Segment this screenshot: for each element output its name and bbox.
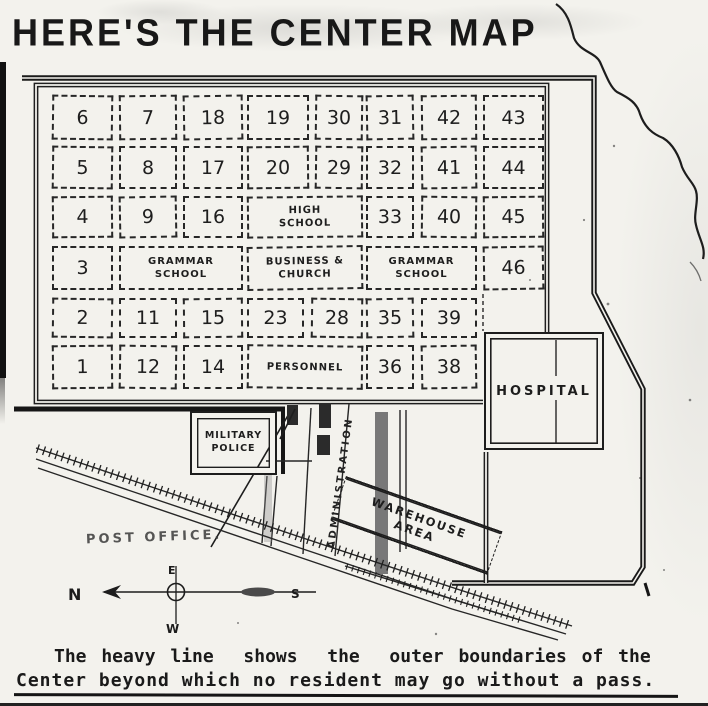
compass-north-label: N [68, 585, 81, 604]
map-caption: The heavy line shows the outer boundarie… [16, 645, 694, 694]
military-police-block: MILITARY POLICE [190, 411, 277, 475]
newspaper-page: { "title": "HERE'S THE CENTER MAP", "map… [0, 0, 708, 706]
grid-border [36, 85, 547, 402]
newspaper-column-rule-fade [0, 378, 5, 424]
compass-east-label: E [168, 564, 176, 577]
military-police-label-line2: POLICE [211, 443, 255, 456]
compass-west-label: W [166, 622, 179, 636]
hospital-label: HOSPITAL [496, 384, 592, 399]
newspaper-column-rule [0, 62, 6, 378]
caption-line2: Center beyond which no resident may go w… [16, 669, 694, 693]
compass-rose: N E W S [68, 564, 316, 636]
gate-buildings [280, 403, 331, 455]
military-police-label-line1: MILITARY [205, 430, 262, 443]
compass-south-label: S [291, 587, 300, 601]
caption-line1: The heavy line shows the outer boundarie… [16, 645, 694, 669]
hospital-block: HOSPITAL [484, 332, 604, 450]
map-title: HERE'S THE CENTER MAP [12, 11, 538, 56]
torn-paper-edge [556, 4, 704, 281]
